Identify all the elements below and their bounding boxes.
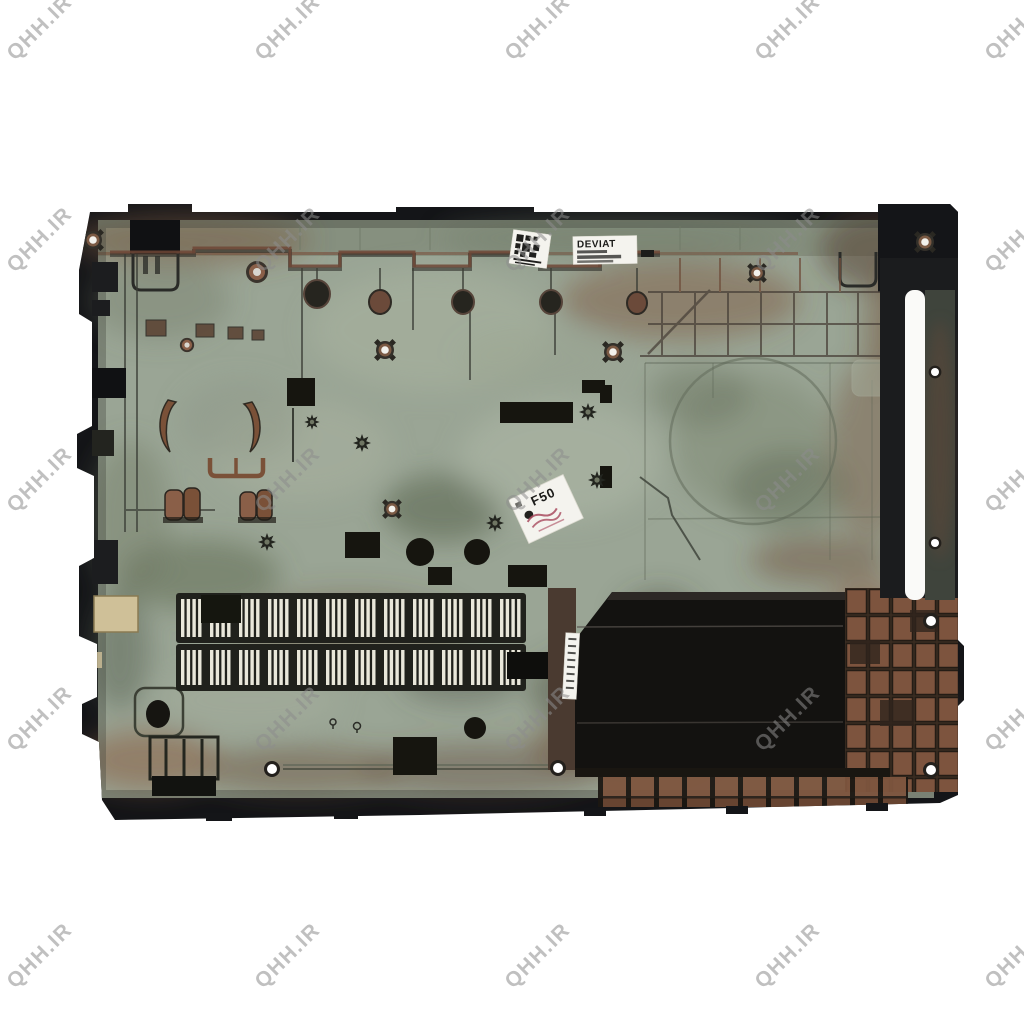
port-opening: [92, 368, 126, 398]
deviation-sticker-title: DEVIAT: [577, 239, 616, 251]
bottom-ladder-band: [575, 768, 908, 807]
qr-sticker: [509, 230, 551, 269]
right-slot-column: [880, 258, 958, 600]
copper-block-cluster: [845, 588, 958, 792]
tan-connector-block: [94, 596, 138, 632]
vent-blocked-patch: [201, 595, 241, 623]
laptop-bottom-case-photo: DEVIAT F50: [0, 0, 1024, 1024]
right-vent-slot: [905, 290, 925, 600]
top-left-tab: [130, 220, 180, 254]
case-interior: DEVIAT F50: [70, 204, 958, 807]
screenshot: DEVIAT F50 QHH.IRQHH.IRQHH.IRQHH.IRQHH.I…: [0, 0, 1024, 1024]
hdd-bay-cover: [548, 588, 857, 770]
vent-grille: [176, 593, 551, 691]
deviation-sticker: DEVIAT: [573, 235, 637, 264]
